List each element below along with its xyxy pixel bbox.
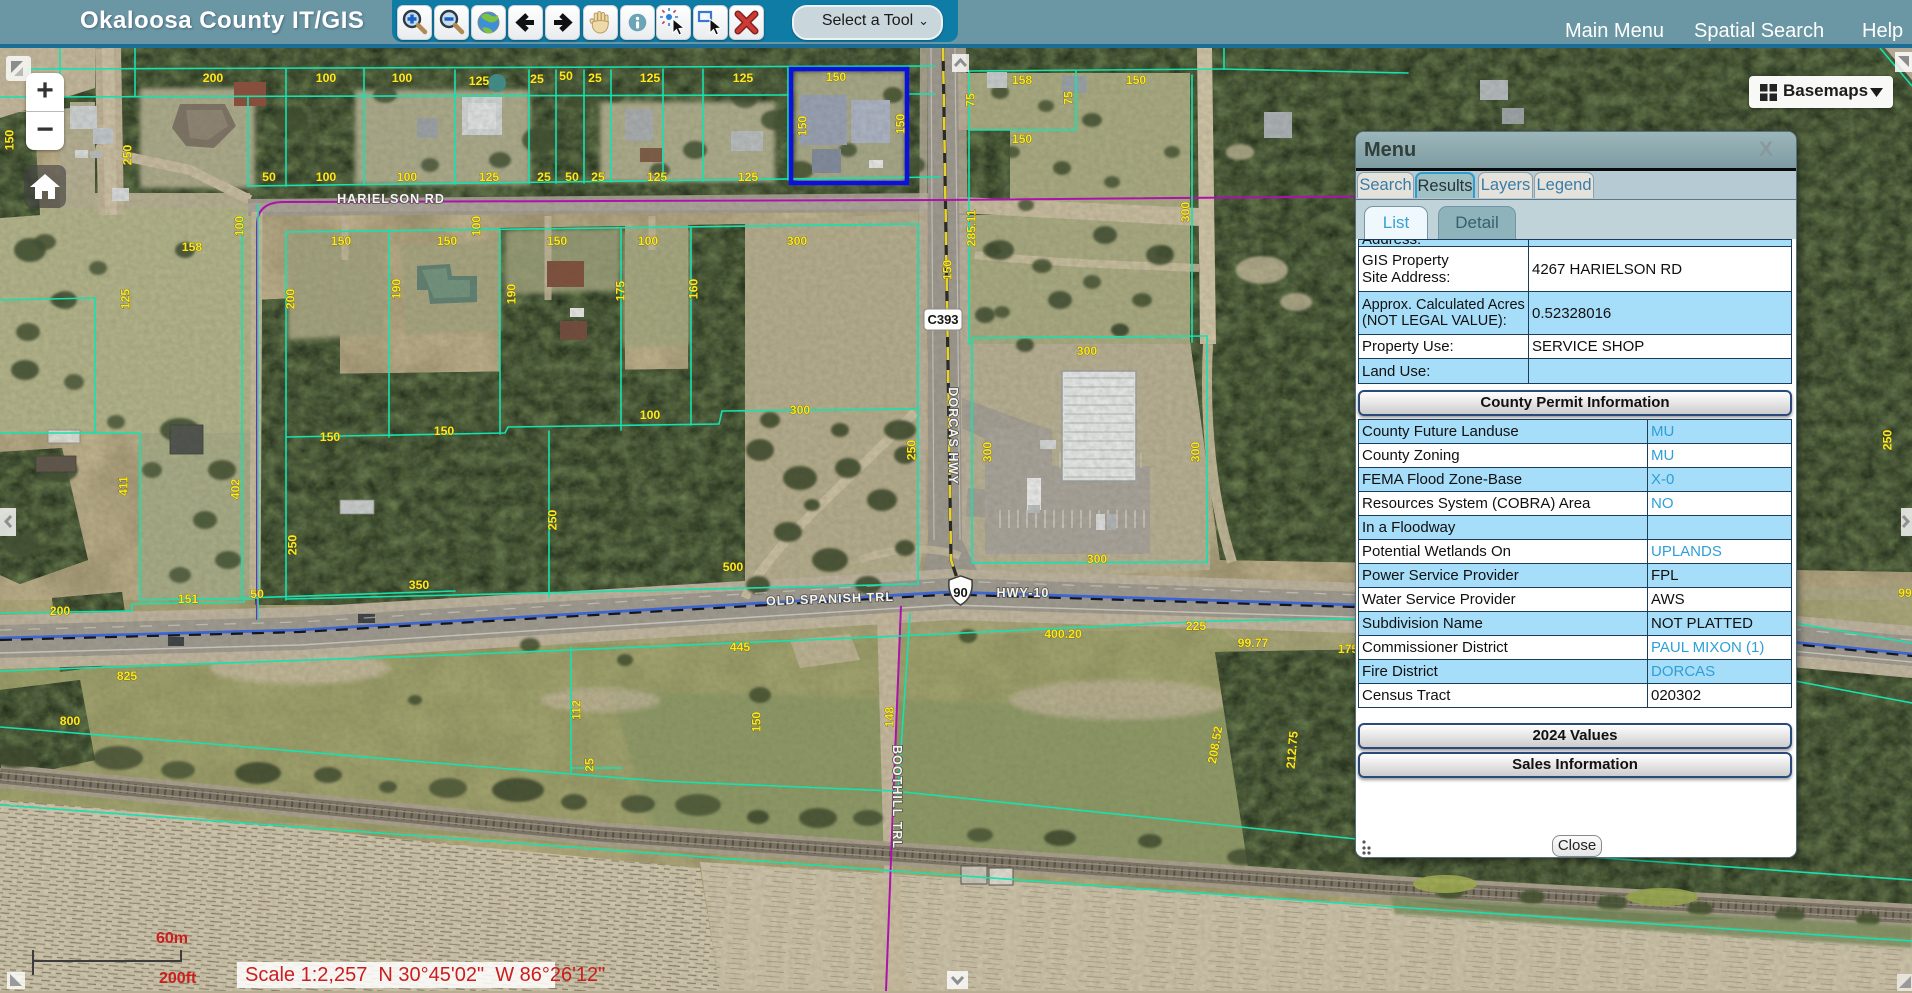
svg-text:125: 125 — [640, 71, 661, 85]
svg-text:250: 250 — [904, 440, 918, 461]
svg-text:285.11: 285.11 — [964, 209, 978, 246]
svg-text:300: 300 — [1188, 442, 1202, 463]
svg-text:150: 150 — [434, 424, 455, 438]
svg-text:150: 150 — [826, 70, 847, 84]
svg-text:75: 75 — [1061, 91, 1075, 105]
svg-text:125: 125 — [738, 170, 759, 184]
svg-text:150: 150 — [1126, 73, 1147, 87]
svg-text:150: 150 — [1012, 132, 1033, 146]
svg-text:300: 300 — [1077, 344, 1098, 358]
svg-text:190: 190 — [389, 279, 403, 300]
svg-text:50: 50 — [565, 170, 579, 184]
svg-text:158: 158 — [182, 240, 203, 254]
svg-text:125: 125 — [118, 289, 132, 310]
svg-text:300: 300 — [787, 234, 808, 248]
svg-text:99: 99 — [1898, 586, 1912, 600]
svg-text:125: 125 — [733, 71, 754, 85]
svg-text:250: 250 — [120, 145, 134, 166]
svg-text:75: 75 — [963, 93, 977, 107]
svg-text:190: 190 — [504, 284, 518, 305]
svg-text:445: 445 — [730, 640, 751, 654]
svg-text:411: 411 — [116, 476, 130, 496]
svg-text:100: 100 — [397, 170, 418, 184]
svg-text:300: 300 — [1178, 202, 1192, 223]
svg-text:225: 225 — [1186, 619, 1207, 633]
svg-text:160: 160 — [686, 279, 700, 300]
svg-text:800: 800 — [60, 714, 81, 728]
svg-text:25: 25 — [588, 71, 602, 85]
svg-text:100: 100 — [392, 71, 413, 85]
svg-text:100: 100 — [640, 408, 661, 422]
svg-text:112: 112 — [569, 700, 583, 720]
svg-text:250: 250 — [285, 535, 299, 556]
svg-text:150: 150 — [331, 234, 352, 248]
svg-text:300: 300 — [790, 403, 811, 417]
svg-text:500: 500 — [723, 560, 744, 574]
svg-text:100: 100 — [469, 216, 483, 237]
svg-text:150: 150 — [437, 234, 458, 248]
svg-text:158: 158 — [1012, 73, 1033, 87]
svg-text:HARIELSON RD: HARIELSON RD — [337, 192, 445, 206]
svg-text:150: 150 — [795, 116, 809, 137]
svg-text:C393: C393 — [927, 312, 958, 327]
svg-text:402: 402 — [228, 479, 242, 500]
svg-text:200: 200 — [50, 604, 71, 618]
svg-text:25: 25 — [591, 170, 605, 184]
svg-text:400.20: 400.20 — [1044, 627, 1082, 641]
svg-text:250: 250 — [545, 510, 559, 531]
svg-text:175: 175 — [613, 281, 627, 302]
svg-text:BOOTHILL TRL: BOOTHILL TRL — [890, 745, 904, 849]
svg-text:150: 150 — [2, 130, 16, 151]
svg-text:250: 250 — [1880, 430, 1894, 451]
svg-text:100: 100 — [232, 216, 246, 237]
svg-text:200: 200 — [203, 71, 224, 85]
svg-text:125: 125 — [479, 170, 500, 184]
svg-text:151: 151 — [178, 592, 199, 606]
svg-text:90: 90 — [953, 585, 967, 600]
svg-text:200: 200 — [283, 289, 297, 310]
svg-text:DORCAS HWY: DORCAS HWY — [946, 387, 960, 484]
svg-text:100: 100 — [316, 71, 337, 85]
svg-text:25: 25 — [530, 72, 544, 86]
svg-text:100: 100 — [316, 170, 337, 184]
svg-text:HWY-10: HWY-10 — [997, 586, 1050, 600]
svg-text:25: 25 — [582, 758, 596, 772]
svg-text:125: 125 — [469, 74, 490, 88]
svg-text:99.77: 99.77 — [1238, 636, 1269, 650]
svg-text:50: 50 — [559, 69, 573, 83]
svg-text:825: 825 — [117, 669, 138, 683]
svg-text:148: 148 — [882, 707, 896, 728]
svg-text:300: 300 — [1087, 552, 1108, 566]
svg-text:50: 50 — [250, 587, 264, 601]
svg-text:150: 150 — [893, 114, 907, 135]
svg-text:350: 350 — [409, 578, 430, 592]
svg-text:150: 150 — [749, 712, 763, 733]
svg-text:25: 25 — [537, 170, 551, 184]
svg-text:100: 100 — [638, 234, 659, 248]
svg-text:150: 150 — [940, 260, 954, 281]
svg-text:300: 300 — [980, 442, 994, 463]
svg-text:50: 50 — [262, 170, 276, 184]
svg-text:125: 125 — [647, 170, 668, 184]
svg-text:150: 150 — [320, 430, 341, 444]
svg-text:150: 150 — [547, 234, 568, 248]
